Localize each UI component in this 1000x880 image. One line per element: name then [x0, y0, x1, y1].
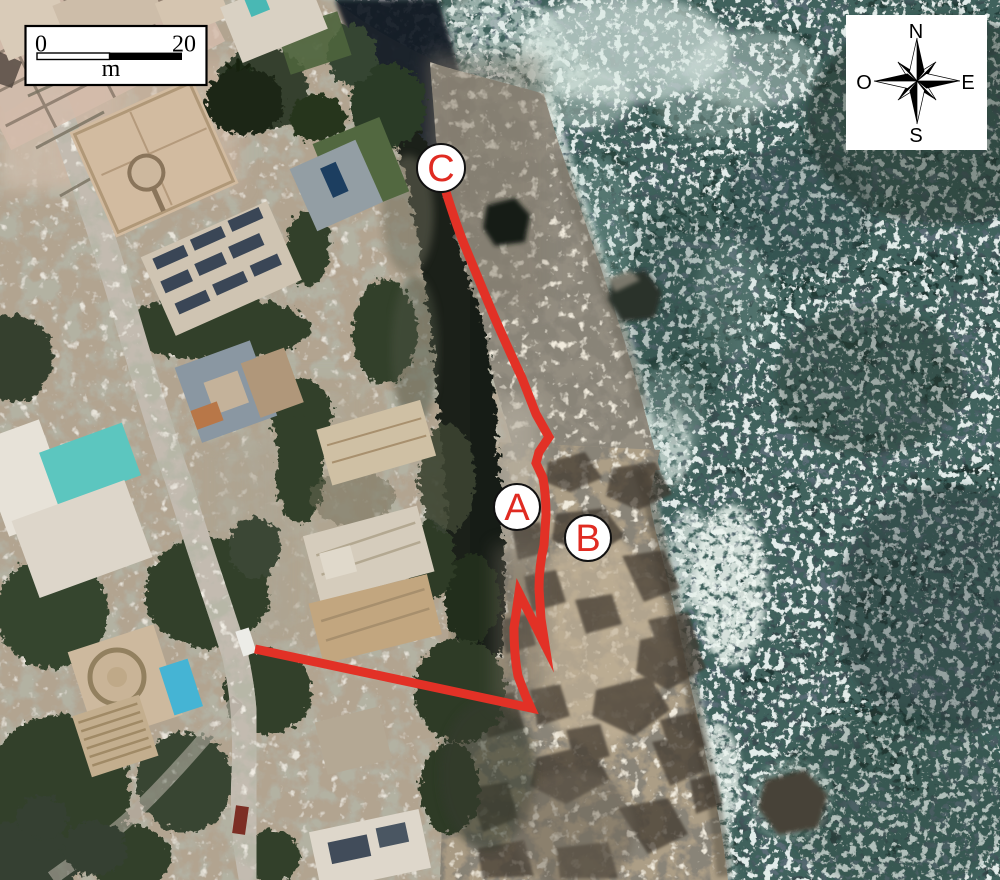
svg-text:B: B	[575, 518, 600, 560]
svg-text:E: E	[961, 72, 974, 94]
svg-text:m: m	[102, 56, 121, 82]
svg-text:O: O	[856, 72, 872, 94]
svg-text:S: S	[909, 125, 922, 147]
svg-text:A: A	[504, 487, 530, 529]
svg-text:C: C	[427, 148, 454, 190]
svg-text:N: N	[909, 21, 923, 43]
